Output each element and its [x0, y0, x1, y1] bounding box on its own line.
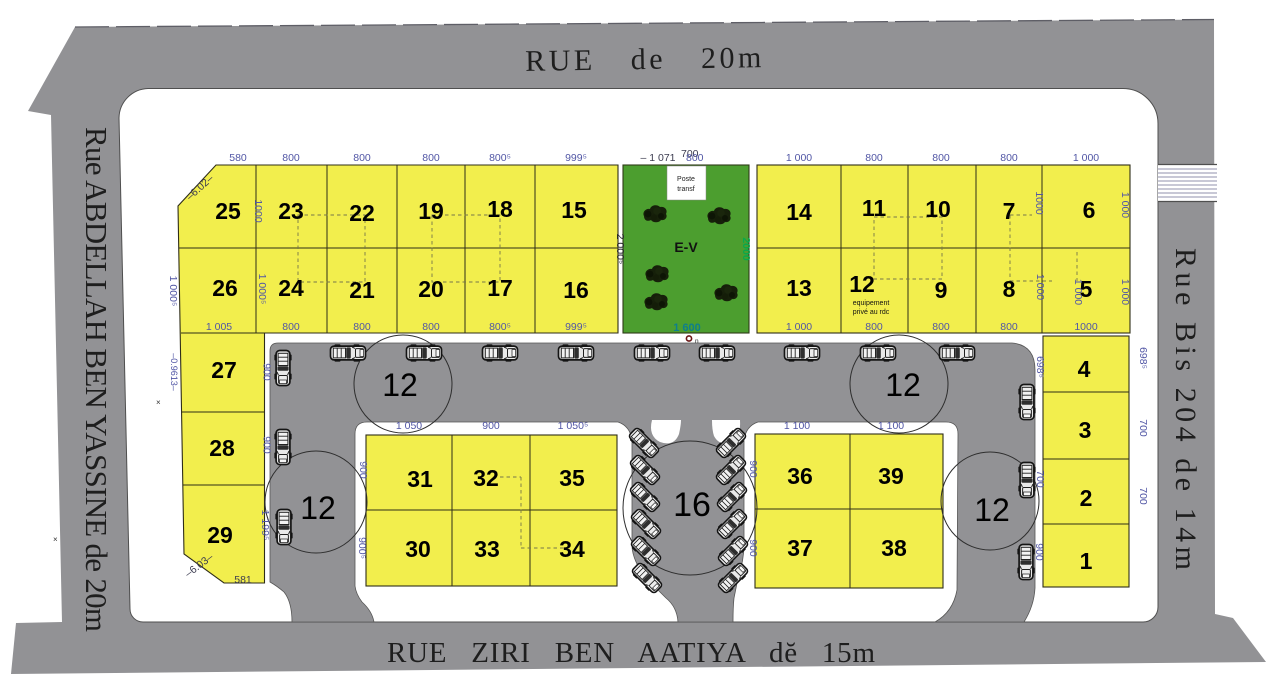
svg-text:800: 800: [282, 152, 300, 164]
svg-text:900: 900: [1033, 543, 1045, 561]
svg-text:7: 7: [1003, 198, 1016, 224]
svg-text:n: n: [695, 338, 699, 345]
svg-text:15: 15: [561, 197, 587, 223]
svg-text:1000: 1000: [252, 199, 264, 223]
svg-text:E-V: E-V: [674, 239, 698, 255]
svg-text:800: 800: [353, 321, 371, 333]
svg-text:Poste: Poste: [677, 176, 695, 183]
svg-text:22: 22: [349, 200, 375, 226]
svg-text:Rue ABDELLAH BEN YASSINE d: Rue ABDELLAH BEN YASSINE de 20m: [79, 127, 114, 632]
svg-text:999⁵: 999⁵: [565, 321, 587, 333]
svg-text:21: 21: [349, 277, 375, 303]
svg-text:700: 700: [1137, 419, 1149, 437]
svg-text:900: 900: [482, 420, 500, 432]
svg-text:900: 900: [261, 436, 273, 454]
svg-text:1 000: 1 000: [1119, 279, 1131, 305]
svg-text:4: 4: [1078, 356, 1091, 382]
svg-text:12: 12: [885, 367, 921, 403]
svg-text:1 000: 1 000: [1034, 274, 1046, 300]
svg-text:1 000⁵: 1 000⁵: [167, 276, 179, 307]
svg-text:17: 17: [487, 275, 513, 301]
svg-text:6: 6: [1083, 197, 1096, 223]
svg-text:2: 2: [1080, 485, 1093, 511]
svg-text:14: 14: [786, 199, 812, 225]
svg-text:700: 700: [1034, 470, 1046, 488]
svg-text:8: 8: [1003, 276, 1016, 302]
svg-text:2 000⁵: 2 000⁵: [614, 234, 626, 265]
svg-text:24: 24: [278, 275, 304, 301]
svg-text:1 100: 1 100: [784, 420, 810, 432]
svg-text:35: 35: [559, 465, 585, 491]
svg-text:1 000: 1 000: [786, 152, 812, 164]
svg-text:28: 28: [209, 435, 235, 461]
svg-text:– 1 071: – 1 071: [640, 152, 675, 164]
svg-text:900: 900: [261, 363, 273, 381]
svg-text:33: 33: [474, 536, 500, 562]
svg-text:900: 900: [747, 539, 759, 557]
svg-text:1 005: 1 005: [206, 321, 232, 333]
svg-text:20: 20: [418, 276, 444, 302]
svg-text:RUE de 20m: RUE de 20m: [525, 41, 765, 78]
svg-text:581: 581: [234, 574, 252, 586]
svg-text:39: 39: [878, 463, 904, 489]
svg-text:900⁵: 900⁵: [356, 537, 368, 559]
svg-text:19: 19: [418, 198, 444, 224]
svg-text:18: 18: [487, 196, 513, 222]
svg-text:Rue Bis 204 de 14m: Rue Bis 204 de 14m: [1169, 248, 1202, 570]
svg-text:999⁵: 999⁵: [565, 152, 587, 164]
svg-text:1 050: 1 050: [396, 420, 422, 432]
svg-text:900: 900: [747, 460, 759, 478]
svg-text:800: 800: [686, 152, 704, 164]
svg-text:RUE ZIRI BEN AATIYA dĕ 15: RUE ZIRI BEN AATIYA dĕ 15m: [387, 637, 877, 669]
svg-text:25: 25: [215, 198, 241, 224]
svg-text:37: 37: [787, 535, 813, 561]
svg-text:12: 12: [382, 367, 418, 403]
svg-text:12: 12: [849, 271, 875, 297]
svg-text:900: 900: [357, 461, 369, 479]
svg-text:580: 580: [229, 152, 247, 164]
svg-text:1000: 1000: [1074, 321, 1098, 333]
svg-text:1000: 1000: [1033, 191, 1045, 215]
svg-text:800: 800: [932, 152, 950, 164]
svg-text:32: 32: [473, 465, 499, 491]
svg-text:800: 800: [865, 321, 883, 333]
svg-text:3: 3: [1079, 417, 1092, 443]
svg-text:23: 23: [278, 198, 304, 224]
svg-text:privé au rdc: privé au rdc: [853, 309, 890, 316]
svg-text:27: 27: [211, 357, 237, 383]
svg-text:34: 34: [559, 536, 585, 562]
svg-text:800: 800: [282, 321, 300, 333]
svg-text:1 000: 1 000: [1119, 192, 1131, 218]
svg-text:36: 36: [787, 463, 813, 489]
svg-text:1 050⁵: 1 050⁵: [558, 420, 589, 432]
svg-text:–0.9613–: –0.9613–: [169, 353, 179, 391]
svg-text:12: 12: [974, 492, 1010, 528]
svg-text:1 199⁵: 1 199⁵: [259, 510, 271, 541]
svg-text:10: 10: [925, 196, 951, 222]
svg-text:11: 11: [862, 195, 887, 221]
svg-text:38: 38: [881, 535, 907, 561]
svg-text:26: 26: [212, 275, 238, 301]
svg-text:29: 29: [207, 522, 233, 548]
svg-text:698⁵: 698⁵: [1137, 347, 1149, 369]
svg-text:800: 800: [932, 321, 950, 333]
svg-text:2000: 2000: [740, 237, 752, 261]
svg-text:1 000⁵: 1 000⁵: [256, 274, 268, 305]
svg-text:31: 31: [407, 466, 433, 492]
svg-text:1 000: 1 000: [786, 321, 812, 333]
svg-text:1 100: 1 100: [878, 420, 904, 432]
svg-text:1 600: 1 600: [673, 322, 701, 334]
svg-text:800: 800: [1000, 152, 1018, 164]
svg-text:800: 800: [1000, 321, 1018, 333]
svg-text:800: 800: [865, 152, 883, 164]
svg-text:700: 700: [1137, 487, 1149, 505]
svg-text:×: ×: [156, 398, 161, 407]
svg-text:698⁵: 698⁵: [1034, 356, 1046, 378]
svg-text:13: 13: [786, 275, 812, 301]
svg-text:×: ×: [53, 535, 58, 544]
svg-text:12: 12: [300, 490, 336, 526]
svg-text:transf: transf: [677, 186, 695, 193]
svg-text:equipement: equipement: [853, 300, 890, 307]
svg-text:800: 800: [422, 321, 440, 333]
svg-text:800⁵: 800⁵: [489, 321, 511, 333]
svg-text:30: 30: [405, 536, 431, 562]
svg-text:16: 16: [673, 486, 711, 524]
svg-text:800: 800: [422, 152, 440, 164]
svg-text:16: 16: [563, 277, 589, 303]
svg-text:1: 1: [1080, 548, 1093, 574]
svg-text:1 000: 1 000: [1073, 152, 1099, 164]
svg-text:1 000: 1 000: [1072, 279, 1084, 305]
svg-text:800: 800: [353, 152, 371, 164]
svg-text:9: 9: [935, 277, 948, 303]
svg-text:800⁵: 800⁵: [489, 152, 511, 164]
